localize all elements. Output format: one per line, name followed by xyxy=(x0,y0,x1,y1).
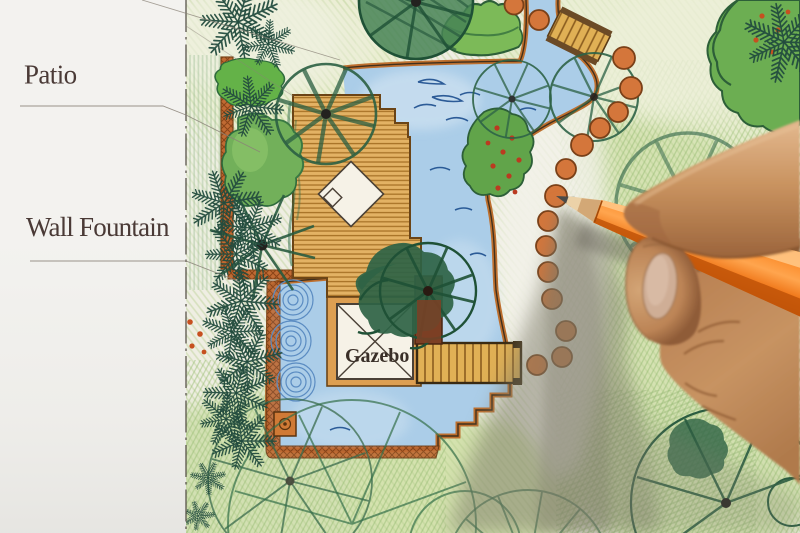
svg-text:Gazebo: Gazebo xyxy=(345,345,409,367)
svg-text:Wall Fountain: Wall Fountain xyxy=(26,212,170,242)
svg-text:Patio: Patio xyxy=(24,60,77,90)
